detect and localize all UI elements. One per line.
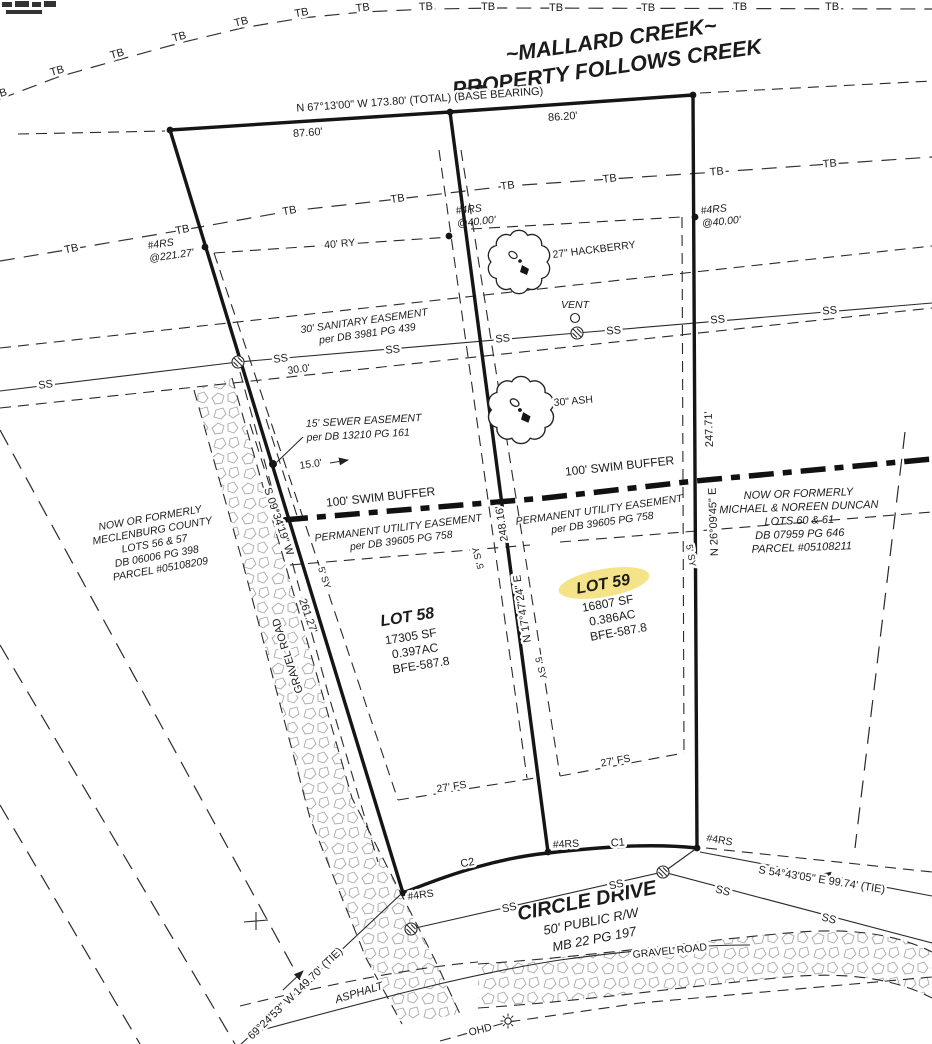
- asphalt-label: ASPHALT: [333, 980, 386, 1007]
- curve-c1-label: C1: [610, 837, 625, 850]
- manhole-icon: [232, 356, 244, 368]
- north-seg-right-dim: 86.20': [548, 110, 578, 124]
- adjoiner-line: PARCEL #05108211: [751, 540, 852, 555]
- sewer-label-leader: [277, 437, 303, 462]
- cut-off-text-fragment: [2, 1, 56, 14]
- tb-label: TB: [549, 2, 563, 14]
- base-bearing-label: N 67°13'00" W 173.80' (TOTAL) (BASE BEAR…: [296, 85, 544, 114]
- tb-label: TB: [825, 1, 839, 13]
- rebar-label-center: #4RS @40.00': [455, 201, 497, 230]
- corner-monument-dot: [545, 849, 552, 856]
- utility-easement-label-east: PERMANENT UTILITY EASEMENT per DB 39605 …: [515, 492, 688, 541]
- swim-buffer-label-east: 100' SWIM BUFFER: [564, 453, 675, 478]
- corner-monument-dot: [446, 233, 453, 240]
- corner-monument-dot: [694, 845, 701, 852]
- side-setback-label: 5' SY: [470, 545, 487, 570]
- front-setback-label-lot58: 27' FS: [436, 779, 468, 796]
- ss-label: SS: [820, 911, 837, 926]
- corner-monument-dot: [202, 244, 209, 251]
- ss-label: SS: [385, 343, 401, 356]
- tb-label: TB: [390, 192, 406, 206]
- adjoiner-line-west-2: [0, 645, 235, 1044]
- ss-label: SS: [495, 332, 511, 345]
- tb-label: TB: [282, 204, 298, 218]
- tb-label: TB: [109, 46, 126, 61]
- corner-monument-dot: [447, 109, 454, 116]
- tb-label: TB: [233, 15, 250, 30]
- ss-label: SS: [606, 324, 622, 337]
- tree-canopy-icon: [488, 230, 549, 293]
- east-boundary-line: [693, 95, 697, 848]
- base-bearing-ext-east-dash: [700, 81, 932, 93]
- tb-label: TB: [174, 223, 190, 237]
- tb-label: TB: [481, 1, 495, 13]
- lot58-details: 17305 SF 0.397AC BFE-587.8: [384, 624, 451, 677]
- lot59-rear-setback-dash: [471, 217, 682, 229]
- tb-label: TB: [822, 157, 837, 170]
- tb-label: TB: [63, 242, 79, 257]
- adjoiner-line: LOTS 60 & 61: [764, 514, 834, 528]
- rebar-label-east: #4RS @40.00': [700, 201, 742, 230]
- ss-label: SS: [38, 378, 54, 392]
- manhole-icon: [571, 327, 583, 339]
- east-bearing-distance: 247.71': [703, 411, 716, 447]
- lot59-details: 16807 SF 0.386AC BFE-587.8: [581, 590, 648, 644]
- sewer-width-label: 15.0': [299, 457, 323, 472]
- corner-to-manhole-line: [665, 848, 697, 871]
- side-setback-label: 5' SY: [532, 656, 549, 681]
- sewer-width-arrow: [330, 460, 348, 463]
- ss-label: SS: [822, 304, 838, 317]
- ss-label: SS: [501, 901, 518, 916]
- tb-label: TB: [419, 1, 434, 14]
- rebar-label-west: #4RS @221.27': [147, 234, 196, 265]
- ohd-label: OHD: [467, 1021, 493, 1038]
- side-setback-label: 5' SY: [315, 566, 333, 591]
- north-seg-left-dim: 87.60': [293, 126, 323, 140]
- tie-se-label: S 54°43'05" E 99.74' (TIE): [758, 864, 886, 896]
- ss-label: SS: [273, 352, 289, 366]
- corner-monument-dot: [400, 890, 407, 897]
- base-bearing-ext-west-dash: [18, 131, 165, 134]
- corner-monument-dot: [167, 127, 174, 134]
- tb-label: TB: [733, 1, 747, 13]
- ash-label: 30" ASH: [553, 394, 593, 409]
- tb-label: TB: [641, 2, 655, 14]
- manhole-icon: [657, 866, 669, 878]
- ss-label: SS: [714, 883, 731, 898]
- tree-canopy-icon: [489, 376, 554, 443]
- east-bearing-direction: N 26°09'45" E: [707, 487, 721, 556]
- adjoiner-line-east-1: [855, 432, 905, 848]
- tie-sw-label: 69°24'53" W 149.70' (TIE): [246, 945, 346, 1042]
- curve-c2-label: C2: [460, 856, 476, 870]
- adjoiner-west-block: NOW OR FORMERLY MECLENBURG COUNTY LOTS 5…: [89, 501, 222, 586]
- adjoiner-east-block: NOW OR FORMERLY MICHAEL & NOREEN DUNCAN …: [719, 485, 884, 557]
- front-setback-label-lot59: 27' FS: [600, 753, 632, 770]
- sewer-easement-label: 15' SEWER EASEMENT per DB 13210 PG 161: [305, 412, 426, 444]
- ss-label: SS: [710, 313, 726, 326]
- utility-pole-light-icon: [501, 1014, 516, 1029]
- corner-monument-dot: [692, 214, 699, 221]
- plat-drawing: ~MALLARD CREEK~ PROPERTY FOLLOWS CREEK B…: [0, 0, 932, 1044]
- corner-monument-dot: [690, 92, 697, 99]
- adjoiner-line-west-3: [0, 805, 140, 1044]
- creek-edge-label: B: [0, 86, 8, 100]
- tb-label: TB: [49, 63, 66, 78]
- vent-label: VENT: [561, 299, 591, 311]
- hackberry-label: 27" HACKBERRY: [552, 239, 636, 261]
- sanitary-easement-south-dash: [0, 308, 932, 408]
- rebar-label-south-west: #4RS: [407, 887, 435, 903]
- tb-label: TB: [355, 1, 370, 14]
- tb-label: TB: [294, 6, 310, 20]
- rebar-label-south-center: #4RS: [553, 838, 580, 851]
- survey-plat-sheet: ~MALLARD CREEK~ PROPERTY FOLLOWS CREEK B…: [0, 0, 932, 1044]
- sanitary-sewer-line: [0, 303, 932, 391]
- tb-label: TB: [602, 172, 617, 185]
- rear-setback-label: 40' RY: [324, 237, 356, 252]
- adjoiner-line: DB 07959 PG 646: [755, 527, 846, 542]
- vent-circle-icon: [571, 314, 580, 323]
- rebar-label-south-east: #4RS: [705, 832, 733, 848]
- tb-label: TB: [709, 165, 724, 178]
- tb-label: TB: [500, 179, 515, 193]
- manhole-icon: [405, 923, 417, 935]
- swim-buffer-label-west: 100' SWIM BUFFER: [325, 484, 436, 509]
- sanitary-easement-north-dash: [0, 246, 932, 348]
- sanitary-easement-label: 30' SANITARY EASEMENT per DB 3981 PG 439: [300, 306, 434, 349]
- center-bearing-distance: 248.16': [494, 505, 511, 542]
- tb-label: TB: [171, 29, 188, 44]
- utility-easement-dash-west: [290, 545, 530, 565]
